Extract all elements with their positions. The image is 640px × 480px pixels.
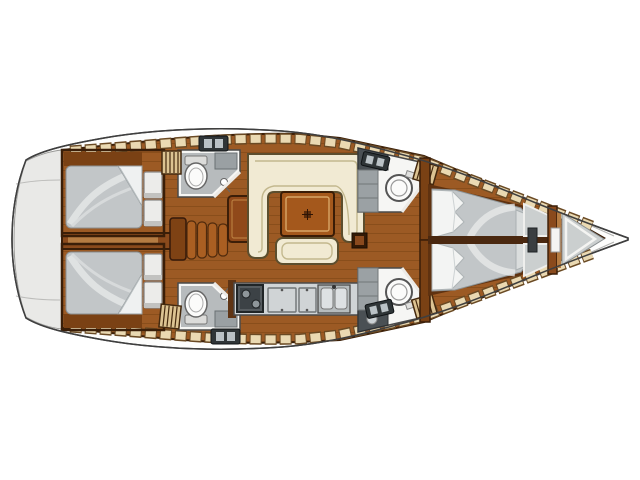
deck-hatch	[199, 136, 228, 151]
companionway-rail	[170, 218, 186, 260]
yacht-layout-figure	[0, 0, 640, 480]
boat-floor-plan	[0, 0, 640, 480]
side-shelf	[64, 152, 142, 166]
companionway-step	[208, 223, 217, 257]
companionway-step	[187, 221, 196, 259]
lockers	[358, 170, 378, 212]
toilet	[185, 163, 207, 189]
side-shelf	[64, 314, 142, 328]
sink-basin	[335, 288, 347, 309]
burner	[242, 290, 250, 298]
faucet	[332, 285, 336, 289]
companionway-step	[198, 222, 207, 258]
slatted-locker	[159, 304, 181, 329]
shower	[215, 153, 237, 169]
galley	[228, 280, 362, 318]
sink-basin	[321, 288, 333, 309]
slatted-locker	[162, 151, 181, 174]
bulkhead-door	[551, 228, 560, 252]
salon-bench	[276, 238, 338, 264]
centerline-step	[528, 228, 537, 252]
toilet	[386, 175, 412, 201]
deck-hatch	[211, 329, 240, 344]
companionway-step	[219, 224, 228, 256]
burner	[252, 300, 260, 308]
toilet	[185, 291, 207, 317]
